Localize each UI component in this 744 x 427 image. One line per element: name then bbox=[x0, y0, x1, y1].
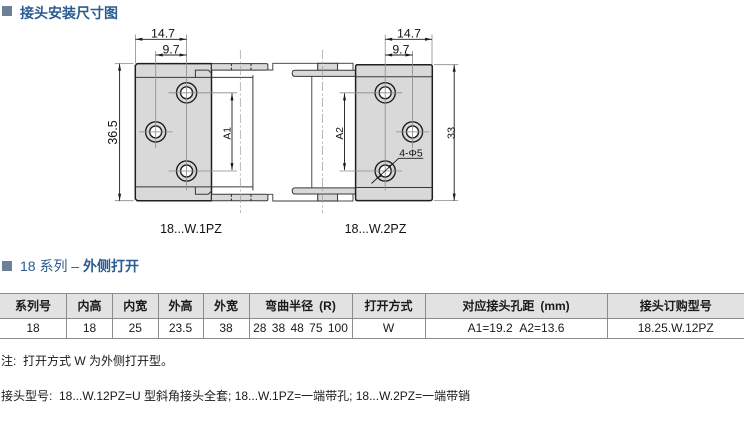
svg-text:33: 33 bbox=[446, 127, 458, 139]
svg-text:18...W.2PZ: 18...W.2PZ bbox=[345, 222, 407, 236]
svg-text:9.7: 9.7 bbox=[162, 42, 179, 56]
svg-text:14.7: 14.7 bbox=[397, 26, 421, 40]
svg-text:36.5: 36.5 bbox=[106, 120, 120, 144]
svg-text:A2: A2 bbox=[335, 127, 346, 140]
svg-text:18...W.1PZ: 18...W.1PZ bbox=[160, 222, 222, 236]
svg-text:9.7: 9.7 bbox=[392, 42, 409, 56]
svg-text:A1: A1 bbox=[222, 127, 233, 140]
svg-text:14.7: 14.7 bbox=[151, 26, 175, 40]
